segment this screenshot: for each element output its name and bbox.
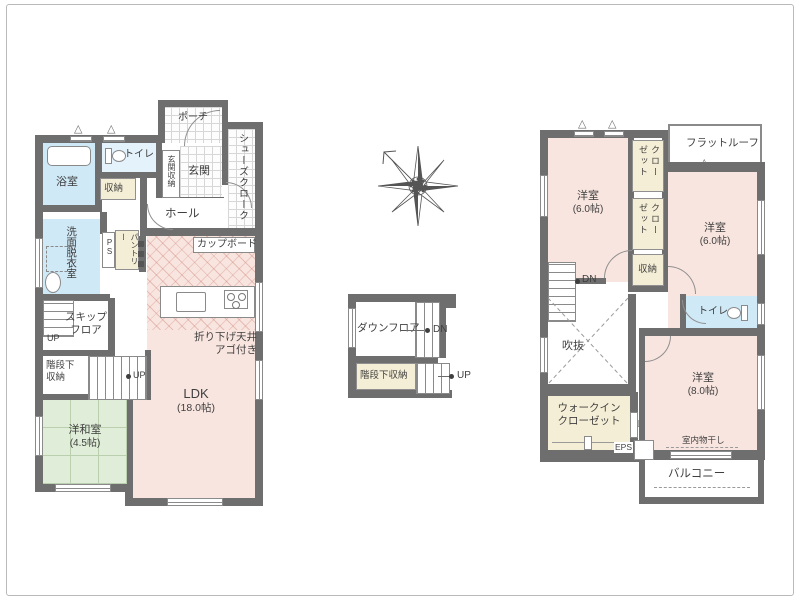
ceiling-note-line1: 折り下げ天井	[181, 331, 257, 344]
room-ne-name: 洋室	[684, 222, 746, 236]
up-label-mezz: UP	[457, 370, 471, 383]
ceiling-note-line2: アゴ付き	[181, 344, 257, 357]
ldk-name: LDK	[163, 386, 229, 402]
balcony-dashed-line	[654, 487, 750, 488]
eps-label: EPS	[614, 442, 633, 453]
vent-icon: △	[608, 119, 616, 130]
vent-icon: △	[74, 124, 82, 135]
door-arrow-icon: ▷	[638, 419, 645, 428]
hall-label: ホール	[165, 207, 200, 221]
room-ldk-ext	[133, 400, 147, 498]
window	[540, 175, 548, 217]
room-ne-size: (6.0帖)	[684, 236, 746, 249]
balcony-label: バルコニー	[668, 467, 725, 481]
room-nw-name: 洋室	[560, 190, 616, 204]
room-s-name: 洋室	[672, 372, 734, 386]
up-dot	[449, 374, 454, 379]
ldk-size: (18.0帖)	[163, 402, 229, 415]
window	[167, 498, 223, 506]
indoor-drying-label: 室内物干し	[682, 435, 725, 446]
toilet-2f-label: トイレ	[698, 306, 728, 319]
storage-2f-label: 収納	[638, 264, 657, 276]
stairs-mezz-up	[416, 363, 450, 394]
kitchen-sink-icon	[176, 292, 206, 312]
ceiling-note: 折り下げ天井 アゴ付き	[181, 331, 257, 357]
stair-up-label: UP	[133, 370, 146, 381]
under-stair-storage-mezz-label: 階段下収納	[360, 370, 408, 382]
washroom-label: 洗面脱衣室	[64, 226, 77, 290]
toilet-1f-label: トイレ	[124, 149, 154, 162]
dn-dot	[425, 328, 430, 333]
closet-b-label: クローゼット	[637, 203, 661, 245]
japanese-room-name: 洋和室	[57, 424, 113, 438]
bath-label: 浴室	[56, 176, 78, 190]
wic-line1: ウォークイン	[550, 402, 628, 415]
pantry-label: パントリー	[118, 233, 140, 269]
down-floor-label: ダウンフロア	[357, 322, 420, 335]
window	[540, 337, 548, 373]
entrance-label: 玄関	[188, 165, 210, 179]
wic-line2: クローゼット	[550, 415, 628, 428]
window	[35, 416, 43, 456]
window	[35, 238, 43, 288]
vent-icon: △	[578, 119, 586, 130]
eps-box	[634, 440, 654, 460]
window	[757, 200, 765, 255]
dn-dot-2f	[575, 279, 580, 284]
flat-roof-label: フラットルーフ	[686, 137, 759, 150]
wic-hanger-support	[584, 436, 592, 450]
wic-label: ウォークイン クローゼット	[550, 402, 628, 428]
stair-up-dot	[126, 374, 131, 379]
cupboard-label: カップボード	[197, 239, 257, 252]
dn-label-2f: DN	[582, 274, 596, 287]
under-stair-storage-1f-label: 階段下収納	[46, 360, 82, 384]
window	[70, 136, 92, 142]
entrance-step-line	[180, 197, 224, 198]
window	[103, 136, 125, 142]
room-nw-label: 洋室 (6.0帖)	[560, 190, 616, 216]
porch-label: ポーチ	[168, 112, 218, 125]
window	[757, 303, 765, 325]
balcony-door-window	[670, 451, 732, 459]
entrance-storage-label: 玄関収納	[166, 155, 176, 195]
room-nw-size: (6.0帖)	[560, 204, 616, 217]
room-ne-label: 洋室 (6.0帖)	[684, 222, 746, 248]
window	[757, 355, 765, 410]
stove-icon	[224, 290, 248, 309]
ldk-label: LDK (18.0帖)	[163, 386, 229, 415]
closet-a-label: クローゼット	[637, 145, 661, 187]
window	[255, 360, 263, 400]
window	[255, 282, 263, 332]
toilet-tank-icon	[105, 148, 112, 164]
window	[604, 131, 624, 137]
toilet-tank-icon-2f	[741, 305, 748, 321]
window	[348, 308, 356, 348]
dn-label-mezz: DN	[433, 324, 447, 337]
drying-line	[666, 447, 738, 448]
bathtub-icon	[47, 146, 91, 166]
compass-icon	[372, 140, 464, 232]
japanese-room-label: 洋和室 (4.5帖)	[57, 424, 113, 450]
japanese-room-size: (4.5帖)	[57, 438, 113, 451]
shoes-cloak-label: シューズクローク	[235, 133, 248, 241]
wic-opening	[630, 412, 638, 438]
vent-icon: △	[700, 158, 708, 169]
sink-icon	[45, 272, 61, 293]
skip-up-label: UP	[47, 333, 60, 344]
window	[55, 484, 111, 492]
skip-floor-label: スキップフロア	[62, 311, 110, 337]
storage-1f-label: 収納	[104, 183, 123, 195]
window	[574, 131, 594, 137]
void-label: 吹抜	[562, 340, 584, 354]
ps-label: PS	[104, 238, 114, 262]
vent-icon: △	[107, 124, 115, 135]
room-s-size: (8.0帖)	[672, 386, 734, 399]
toilet-bowl-icon-2f	[727, 307, 741, 319]
room-s-label: 洋室 (8.0帖)	[672, 372, 734, 398]
floor-plan-canvas: △ △ ポーチ シューズクローク トイレ 浴室 収納 玄関収納 玄関 ホール 洗…	[0, 0, 800, 600]
void-x-lines	[548, 298, 628, 384]
